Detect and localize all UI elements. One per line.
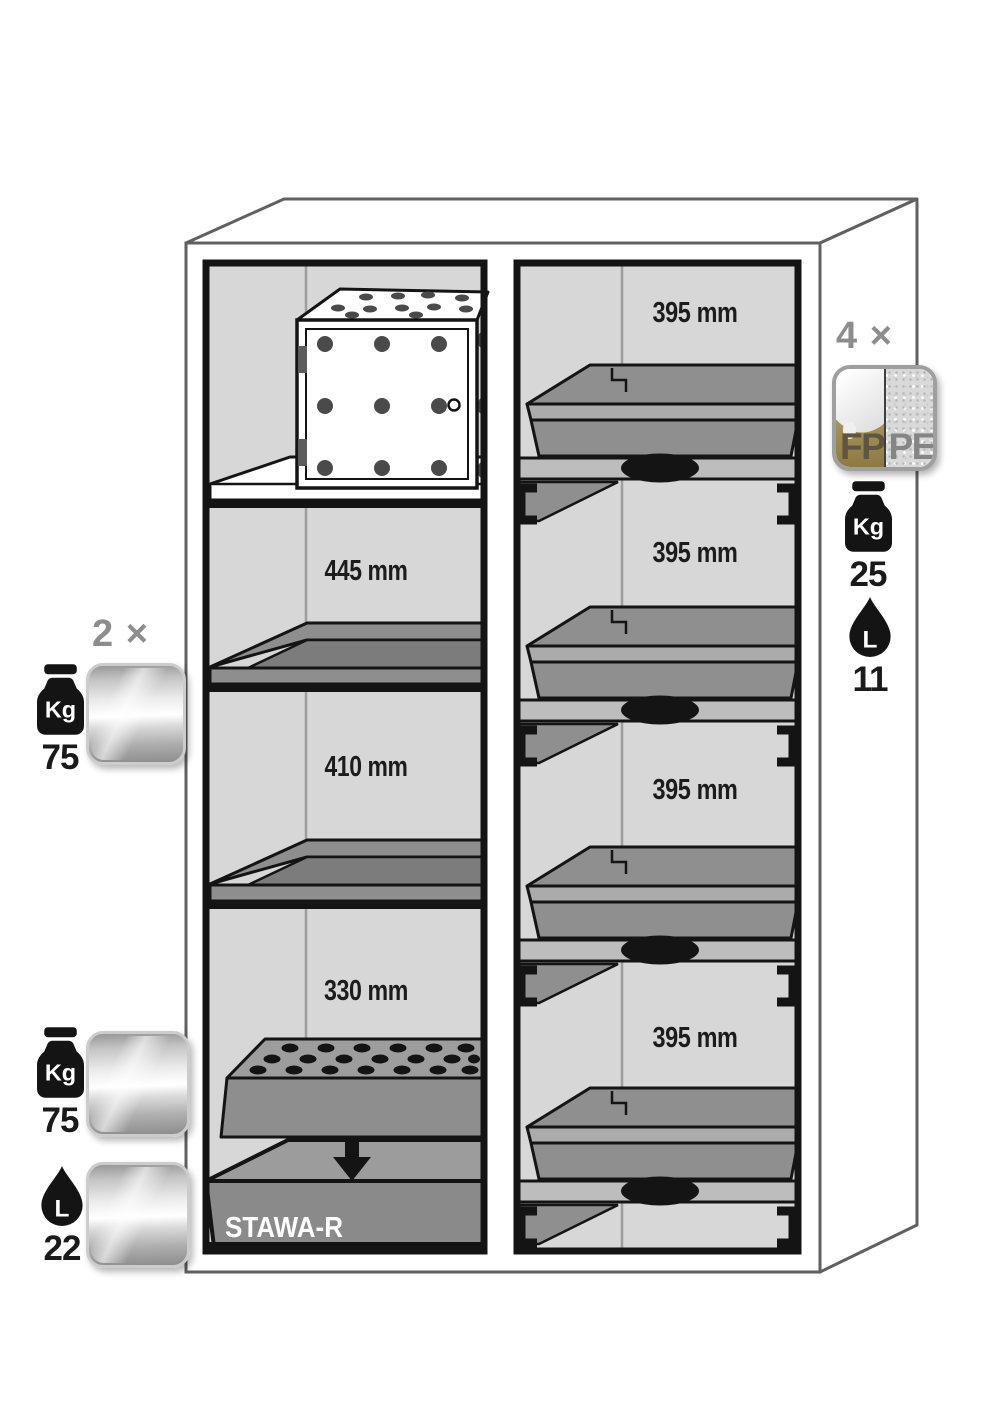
weight-icon: Kg [845,481,892,552]
sump-volume-capacity: L 22 [34,1166,90,1266]
steel-shelf-icon [86,663,186,765]
droplet-icon: L [849,597,891,657]
volume-unit-label: L [863,627,878,654]
drawer-label-2: 395 mm [653,537,738,569]
tray-handle [621,936,699,965]
drawer-weight-capacity: Kg 25 [840,481,896,592]
weight-unit-label: Kg [44,1060,75,1086]
steel-sump-icon [86,1162,190,1268]
weight-value: 75 [42,1103,79,1138]
sump-weight-capacity: Kg 75 [32,1027,88,1138]
drawer-label-3: 395 mm [653,774,738,806]
box-hinge [298,439,307,466]
sump-label: STAWA-R [225,1212,343,1244]
fp-label: FP [840,428,884,466]
droplet-icon: L [41,1166,83,1226]
weight-icon: Kg [37,664,84,735]
volume-value: 22 [44,1231,81,1266]
drawer-volume-capacity: L 11 [842,597,898,697]
left-compartment: STAWA-R [206,263,488,1252]
weight-unit-label: Kg [44,697,75,723]
weight-unit-label: Kg [852,514,883,540]
tray-handle [621,1177,699,1206]
drawer-label-4: 395 mm [653,1022,738,1054]
safety-storage-box [297,289,488,488]
cabinet-top-face [186,199,917,243]
dim-label-445: 445 mm [325,555,408,587]
weight-icon: Kg [37,1027,84,1098]
drawer-label-1: 395 mm [653,297,738,329]
volume-value: 11 [853,662,888,697]
tray-handle [621,696,699,725]
fp-pe-material-icon: FP PE [832,365,937,471]
box-lock [449,400,460,411]
perforated-insert [221,1039,485,1137]
cabinet-diagram: STAWA-R [0,0,1004,1419]
shelf-count-label: 2 × [92,615,149,653]
dim-label-410: 410 mm [325,751,408,783]
weight-value: 75 [42,740,79,775]
volume-unit-label: L [55,1196,70,1223]
pe-half: PE [884,369,934,467]
drawer-count-label: 4 × [836,317,893,355]
weight-value: 25 [850,557,887,592]
shelf-capacity: Kg 75 [32,664,88,775]
right-compartment: 395 mm 395 mm 395 mm 395 mm [517,263,798,1251]
fp-half: FP [836,369,884,467]
steel-shelf-icon [86,1031,190,1137]
tray-handle [621,454,699,483]
dim-label-330: 330 mm [324,975,408,1007]
box-hinge [298,346,307,373]
cabinet-side-face [820,199,917,1272]
pe-label: PE [889,428,934,466]
